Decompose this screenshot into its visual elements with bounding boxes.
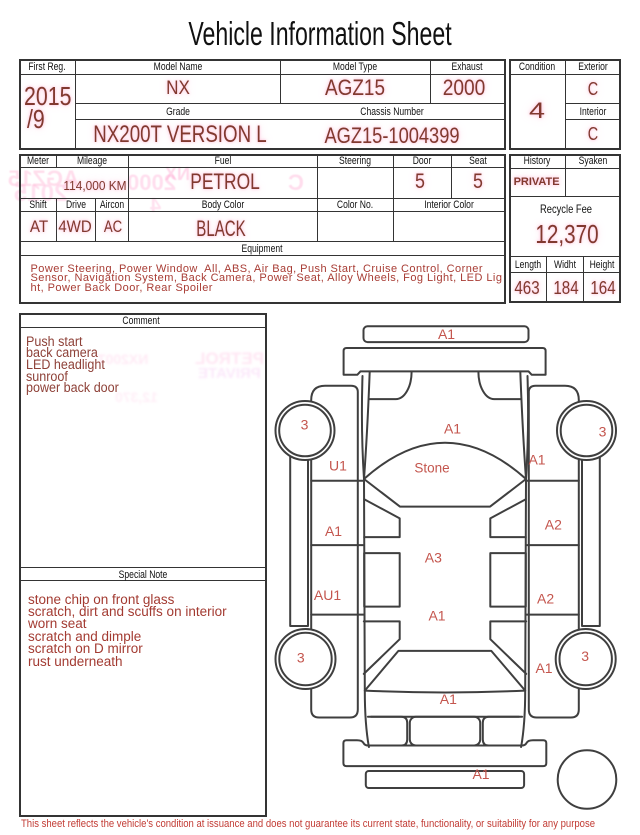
svg-text:3: 3 [599,424,607,440]
svg-text:3: 3 [581,648,589,664]
svg-text:A2: A2 [545,516,562,532]
svg-text:A1: A1 [444,421,461,437]
svg-text:3: 3 [301,417,309,433]
svg-text:A1: A1 [438,326,455,342]
svg-text:A2: A2 [537,590,554,606]
svg-text:AU1: AU1 [314,587,341,603]
svg-text:3: 3 [297,650,305,666]
svg-text:A1: A1 [440,691,457,707]
svg-text:A3: A3 [425,550,442,566]
svg-text:A1: A1 [428,608,445,624]
svg-text:Stone: Stone [414,461,449,476]
svg-text:A1: A1 [528,452,545,468]
svg-text:A1: A1 [535,660,552,676]
svg-text:A1: A1 [325,523,342,539]
svg-text:A1: A1 [472,766,489,782]
svg-text:U1: U1 [329,458,347,474]
